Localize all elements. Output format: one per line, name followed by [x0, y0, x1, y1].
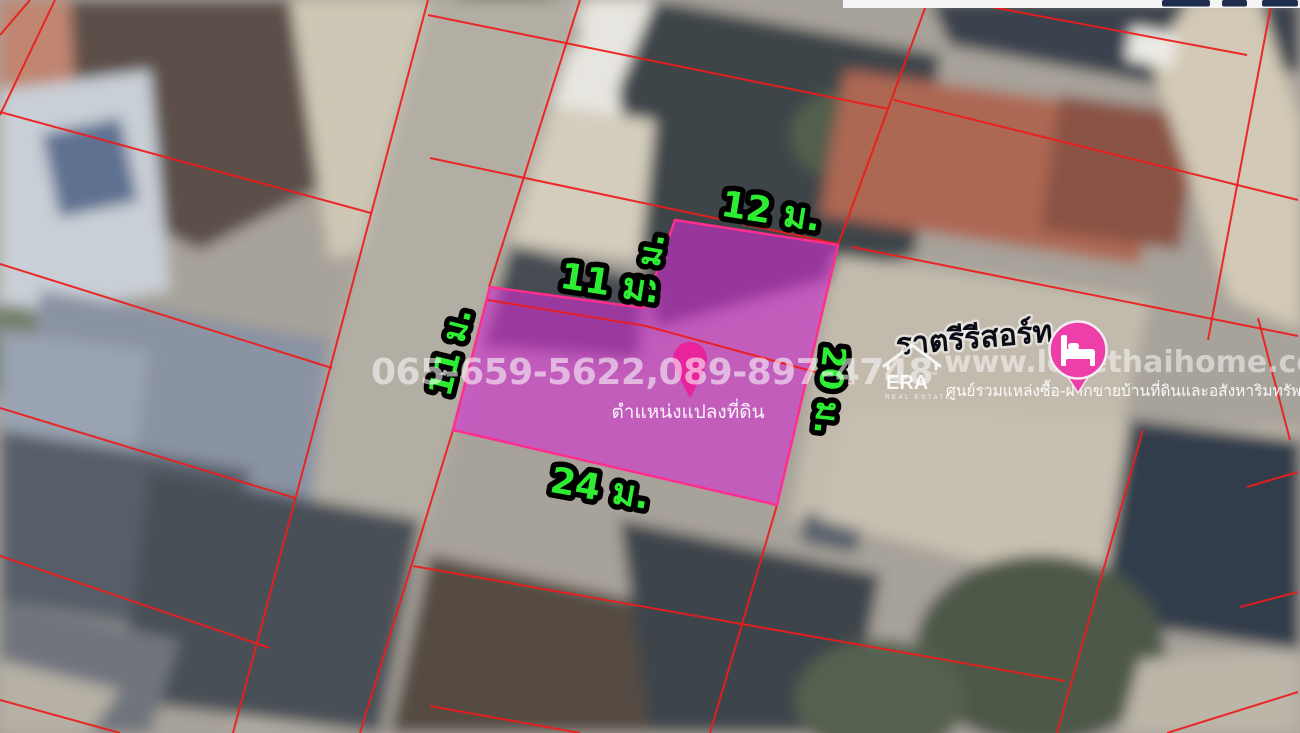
era-logo-subtitle: REAL ESTATE — [885, 394, 952, 401]
era-trademark: ™ — [930, 372, 937, 379]
top-strip-tab — [1262, 0, 1298, 7]
bed-mattress — [1061, 349, 1095, 359]
bed-pillow — [1068, 343, 1079, 350]
era-logo-title: ERA — [886, 372, 928, 394]
top-edge-strip — [843, 0, 1300, 8]
property-listing-image: 12 ม. 8 ม. 11 ม. 11 ม. 20 ม. 24 ม. ตำแหน… — [0, 0, 1300, 733]
bed-leg — [1090, 357, 1095, 366]
plot-location-label: ตำแหน่งแปลงที่ดิน — [611, 398, 764, 423]
bed-leg — [1061, 357, 1066, 366]
top-strip-tab — [1162, 0, 1210, 7]
brand-tagline: ศูนย์รวมแหล่งซื้อ-ฝากขายบ้านที่ดินและอสั… — [946, 379, 1300, 401]
phone-watermark: 065-659-5622,089-897-4748 — [371, 352, 933, 393]
map-canvas: 12 ม. 8 ม. 11 ม. 11 ม. 20 ม. 24 ม. ตำแหน… — [0, 0, 1300, 733]
top-strip-tab — [1222, 0, 1247, 7]
